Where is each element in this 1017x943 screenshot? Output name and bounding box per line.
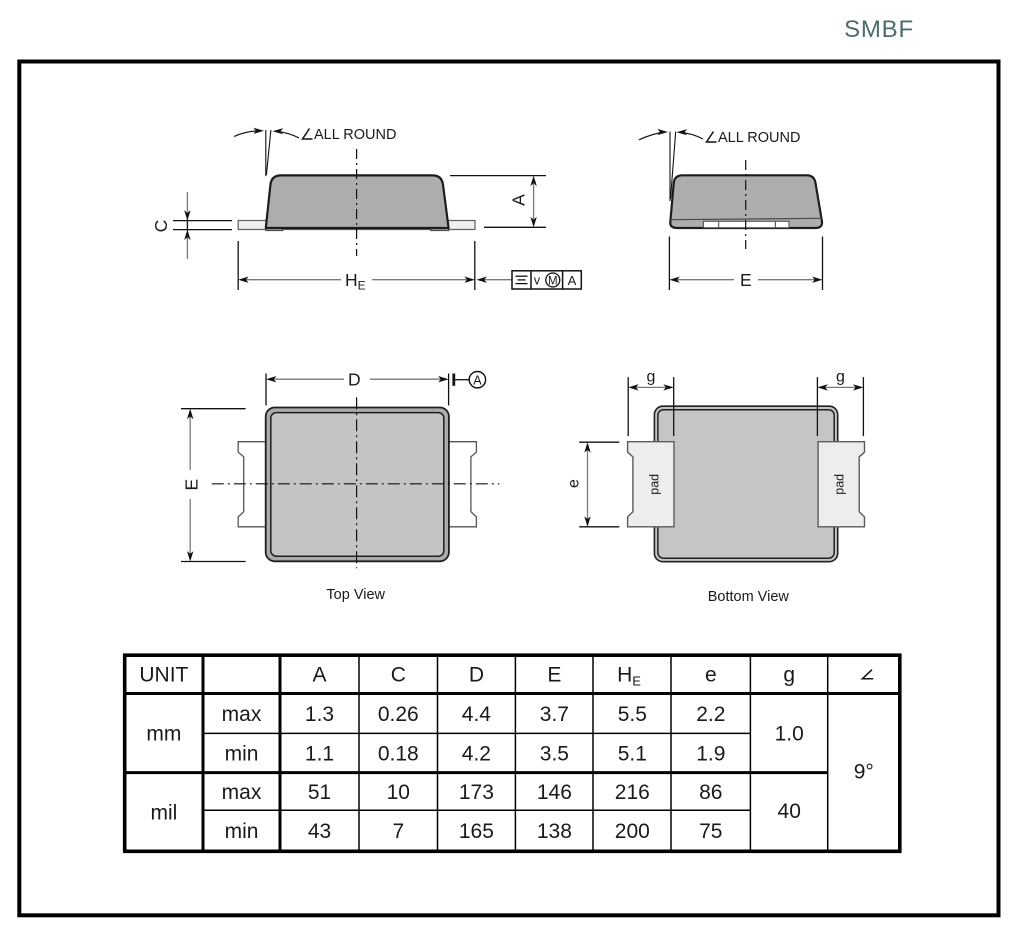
svg-text:D: D [348, 370, 361, 390]
svg-text:Top View: Top View [326, 587, 385, 603]
svg-text:0.18: 0.18 [378, 743, 419, 766]
svg-text:A: A [312, 664, 326, 687]
svg-text:e: e [566, 479, 583, 488]
svg-text:SMBF: SMBF [844, 16, 914, 43]
svg-text:pad: pad [833, 474, 847, 495]
svg-text:2.2: 2.2 [696, 703, 725, 726]
svg-text:g: g [647, 369, 656, 386]
svg-text:51: 51 [308, 781, 331, 804]
svg-text:D: D [469, 664, 484, 687]
svg-text:0.26: 0.26 [378, 703, 419, 726]
svg-text:40: 40 [778, 800, 801, 823]
svg-text:C: C [151, 220, 171, 233]
svg-text:138: 138 [537, 820, 572, 843]
svg-text:86: 86 [699, 781, 722, 804]
svg-text:UNIT: UNIT [139, 664, 188, 687]
svg-text:mil: mil [150, 802, 177, 825]
svg-text:max: max [222, 703, 262, 726]
svg-text:e: e [705, 664, 717, 687]
svg-text:1.0: 1.0 [775, 723, 804, 746]
svg-text:pad: pad [648, 474, 662, 495]
svg-text:216: 216 [615, 781, 650, 804]
svg-text:Bottom View: Bottom View [708, 589, 790, 605]
svg-text:43: 43 [308, 820, 331, 843]
svg-text:A: A [568, 273, 577, 288]
svg-text:ALL ROUND: ALL ROUND [718, 130, 800, 146]
svg-text:E: E [182, 479, 202, 491]
svg-text:146: 146 [537, 781, 572, 804]
svg-text:E: E [547, 664, 561, 687]
svg-text:C: C [391, 664, 406, 687]
svg-text:10: 10 [387, 781, 410, 804]
svg-text:A: A [509, 194, 529, 206]
svg-text:g: g [836, 369, 845, 386]
svg-text:mm: mm [146, 723, 181, 746]
svg-text:3.5: 3.5 [540, 743, 569, 766]
svg-text:M: M [548, 275, 558, 287]
svg-text:v: v [534, 274, 541, 288]
svg-text:200: 200 [615, 820, 650, 843]
svg-text:1.3: 1.3 [305, 703, 334, 726]
svg-text:min: min [225, 743, 259, 766]
svg-text:5.1: 5.1 [618, 743, 647, 766]
svg-text:E: E [740, 270, 752, 290]
svg-text:max: max [222, 781, 262, 804]
svg-text:g: g [783, 664, 795, 687]
svg-text:1.9: 1.9 [696, 743, 725, 766]
svg-text:4.4: 4.4 [462, 703, 492, 726]
svg-text:1.1: 1.1 [305, 743, 334, 766]
svg-text:75: 75 [699, 820, 722, 843]
svg-text:A: A [473, 373, 482, 387]
svg-text:7: 7 [392, 820, 404, 843]
svg-text:165: 165 [459, 820, 494, 843]
svg-text:173: 173 [459, 781, 494, 804]
svg-text:4.2: 4.2 [462, 743, 491, 766]
svg-text:5.5: 5.5 [618, 703, 647, 726]
svg-text:ALL ROUND: ALL ROUND [314, 127, 396, 143]
svg-text:3.7: 3.7 [540, 703, 569, 726]
svg-text:9°: 9° [854, 761, 874, 784]
svg-text:min: min [225, 820, 259, 843]
